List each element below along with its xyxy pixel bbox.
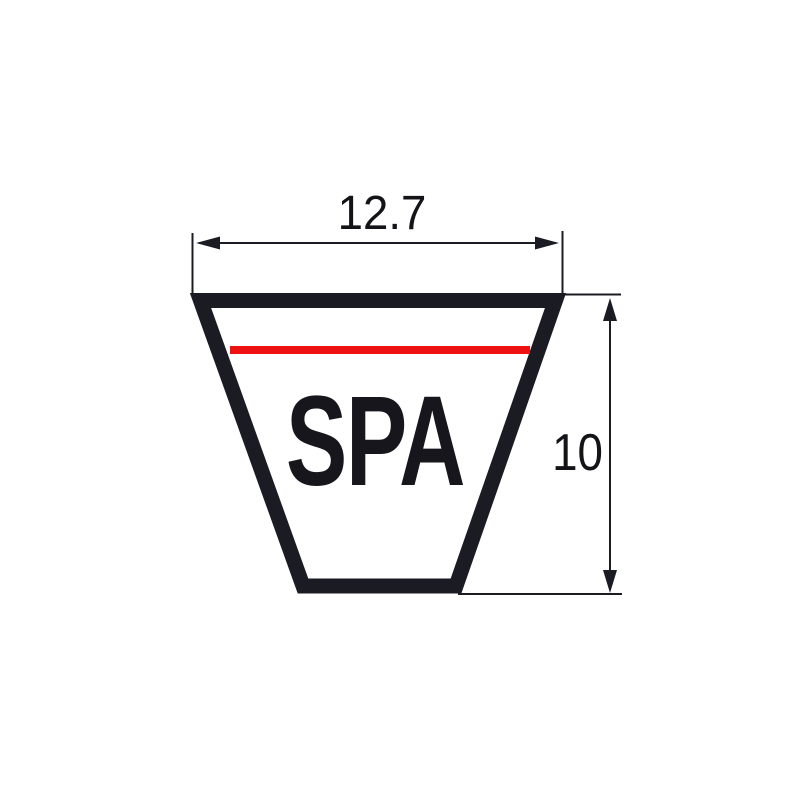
height-arrowhead-top xyxy=(603,298,617,321)
height-value: 10 xyxy=(552,424,603,481)
top-width-value: 12.7 xyxy=(338,186,427,239)
belt-profile-diagram: SPA 12.7 10 xyxy=(0,0,800,800)
top-width-arrowhead-left xyxy=(196,237,220,250)
top-width-label-group: 12.7 xyxy=(338,186,427,239)
top-width-dimension xyxy=(193,231,563,298)
top-width-arrowhead-right xyxy=(535,237,559,250)
height-arrowhead-bottom xyxy=(603,570,617,593)
profile-label-group: SPA xyxy=(286,369,464,512)
height-label-group: 10 xyxy=(552,424,603,481)
diagram-canvas: SPA 12.7 10 xyxy=(0,0,800,800)
profile-label: SPA xyxy=(286,369,464,512)
